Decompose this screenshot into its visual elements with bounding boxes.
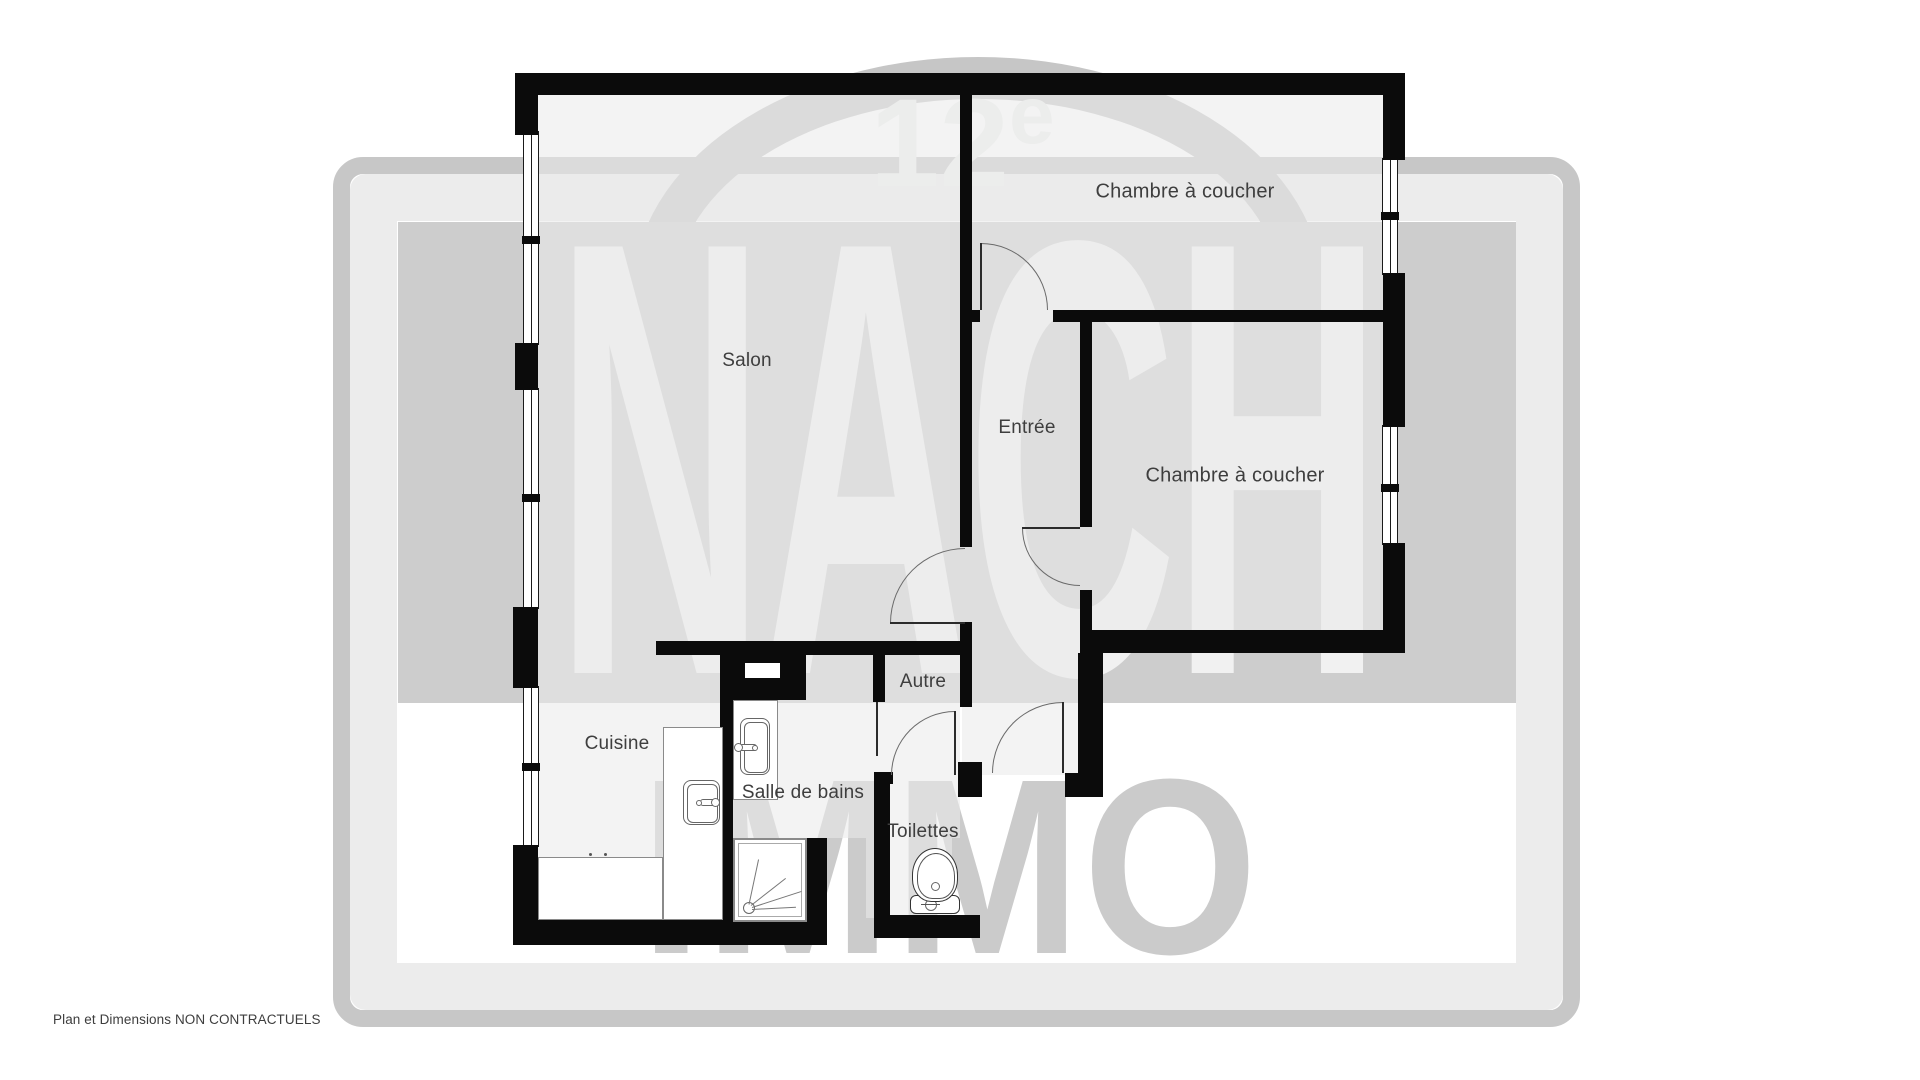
wall-autre-left <box>873 648 885 702</box>
room-label-toilettes: Toilettes <box>887 821 959 843</box>
wall-toilettes-left <box>874 772 890 938</box>
counter-handle-dot <box>589 853 592 856</box>
wall-chambre1-bottom <box>1053 310 1383 322</box>
wall-entree-jamb-left <box>958 762 982 797</box>
door-leaf-salon <box>890 622 965 624</box>
bath-faucet-knob <box>734 743 743 752</box>
wall-bottom-toilettes <box>885 915 980 938</box>
duct-niche <box>745 663 780 678</box>
window-tick <box>522 236 540 244</box>
room-label-entree: Entrée <box>998 417 1055 439</box>
window-tick <box>522 494 540 502</box>
wall-left-pillar <box>515 343 538 390</box>
window-tick <box>1381 212 1399 220</box>
wall-salon-entree-lower <box>960 622 972 707</box>
room-label-autre: Autre <box>900 671 946 693</box>
bath-faucet-knob <box>752 745 758 751</box>
shower-icon <box>733 838 807 922</box>
wall-kitchen-top <box>656 641 970 655</box>
room-label-chambre-2: Chambre à coucher <box>1145 465 1324 488</box>
disclaimer-text: Plan et Dimensions NON CONTRACTUELS <box>53 1012 321 1027</box>
room-label-salon: Salon <box>722 350 772 372</box>
wall-top <box>515 73 1405 95</box>
wall-bottom <box>513 920 827 945</box>
floor-plan-page: NACH IMMO 12e <box>0 0 1920 1080</box>
room-label-salle-de-bains: Salle de bains <box>742 782 864 804</box>
wall-right-pillar <box>1383 273 1405 427</box>
wall-right-pillar <box>1383 73 1405 160</box>
door-leaf-toilettes <box>954 711 956 775</box>
wall-chambre2-bottom <box>1092 630 1405 653</box>
wall-entree-right-lower <box>1078 653 1103 773</box>
wall-left-pillar <box>515 95 538 135</box>
door-leaf-chambre1 <box>980 243 982 310</box>
wall-chambre2-left-upper <box>1080 322 1092 527</box>
door-leaf-chambre2 <box>1022 527 1080 529</box>
room-label-cuisine: Cuisine <box>585 733 650 755</box>
wall-entree-jamb-right <box>1065 773 1103 797</box>
toilet-bowl-icon <box>912 848 958 902</box>
wall-chambre1-jamb <box>960 310 980 322</box>
room-label-chambre-1: Chambre à coucher <box>1095 181 1274 204</box>
window-tick <box>522 763 540 771</box>
door-leaf-entree <box>1062 702 1064 773</box>
door-leaf-autre <box>876 702 878 756</box>
kitchen-counter-icon <box>538 857 663 920</box>
window-tick <box>1381 484 1399 492</box>
kitchen-faucet-knob <box>696 800 702 806</box>
wall-left-pillar <box>513 607 538 688</box>
wall-chambre2-left-lower <box>1080 590 1092 653</box>
counter-handle-dot <box>604 853 607 856</box>
kitchen-faucet-knob <box>711 798 720 807</box>
